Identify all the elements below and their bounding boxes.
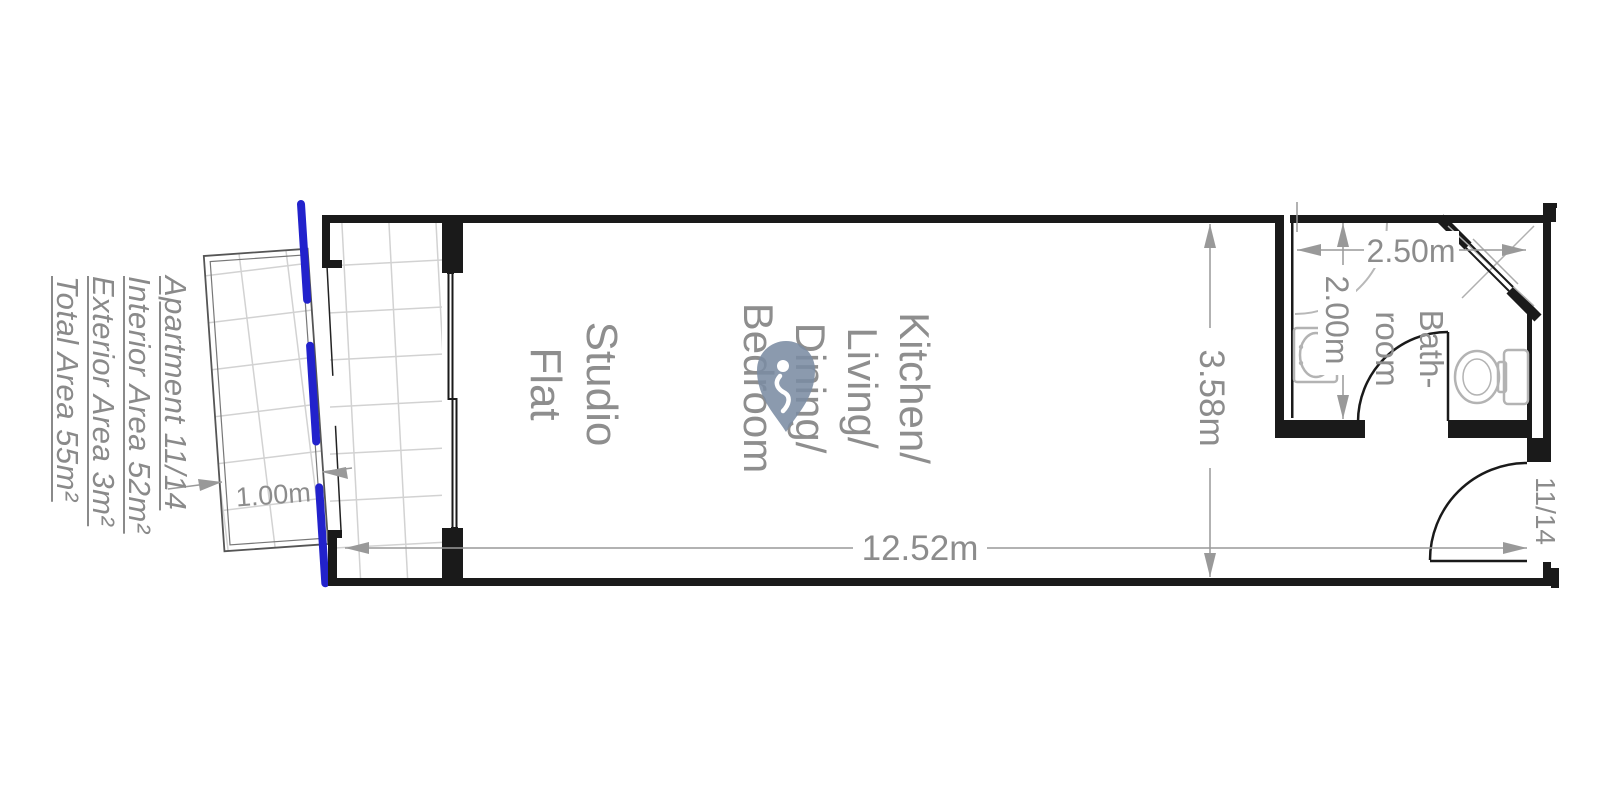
info-line-total-area: Total Area 55m² <box>49 276 85 606</box>
floor-plan-page: 12.52m 3.58m 2.50m 2.00m <box>0 0 1600 800</box>
apartment-info-panel: Apartment 11/14 Interior Area 52m² Exter… <box>43 276 193 606</box>
kitchen-label-line2: Living/ <box>839 327 886 449</box>
info-line-interior-area: Interior Area 52m² <box>121 276 157 606</box>
dimension-overall-width-label: 12.52m <box>862 529 979 568</box>
entrance-unit-label: 11/14 <box>1530 477 1561 545</box>
info-line-exterior-area: Exterior Area 3m² <box>85 276 121 606</box>
dimension-bathroom-width-label: 2.50m <box>1367 233 1456 269</box>
dimension-terrace-depth-label: 1.00m <box>235 477 312 512</box>
bathroom-label: Bath- room <box>1369 310 1450 389</box>
bathroom-label-line1: Bath- <box>1413 310 1450 389</box>
studio-label-line2: Flat <box>521 347 570 420</box>
kitchen-label-line1: Kitchen/ <box>891 312 938 464</box>
entrance-unit-text: 11/14 <box>1530 477 1561 545</box>
exterior-area-text: Exterior Area 3m² <box>86 276 121 526</box>
dimension-overall-depth-label: 3.58m <box>1192 349 1231 446</box>
dimension-overall-width: 12.52m <box>345 528 1527 568</box>
info-line-apartment: Apartment 11/14 <box>157 276 193 606</box>
dimension-bathroom-depth-label: 2.00m <box>1319 276 1355 365</box>
terrace-sliding-window <box>447 273 458 528</box>
studio-label-line1: Studio <box>577 322 626 447</box>
dimension-bathroom-depth: 2.00m <box>1318 223 1356 419</box>
total-area-text: Total Area 55m² <box>50 276 85 502</box>
toilet-fixture <box>1455 350 1528 404</box>
studio-flat-label: Studio Flat <box>521 322 626 447</box>
dimension-overall-depth: 3.58m <box>1192 224 1232 577</box>
apartment-number-text: Apartment 11/14 <box>158 276 193 510</box>
bathroom-label-line2: room <box>1369 311 1406 386</box>
interior-area-text: Interior Area 52m² <box>122 276 157 534</box>
terrace-tiled-floor <box>330 223 442 578</box>
dimension-bathroom-width: 2.50m <box>1297 202 1526 269</box>
floor-plan-canvas: 12.52m 3.58m 2.50m 2.00m <box>0 0 1600 800</box>
